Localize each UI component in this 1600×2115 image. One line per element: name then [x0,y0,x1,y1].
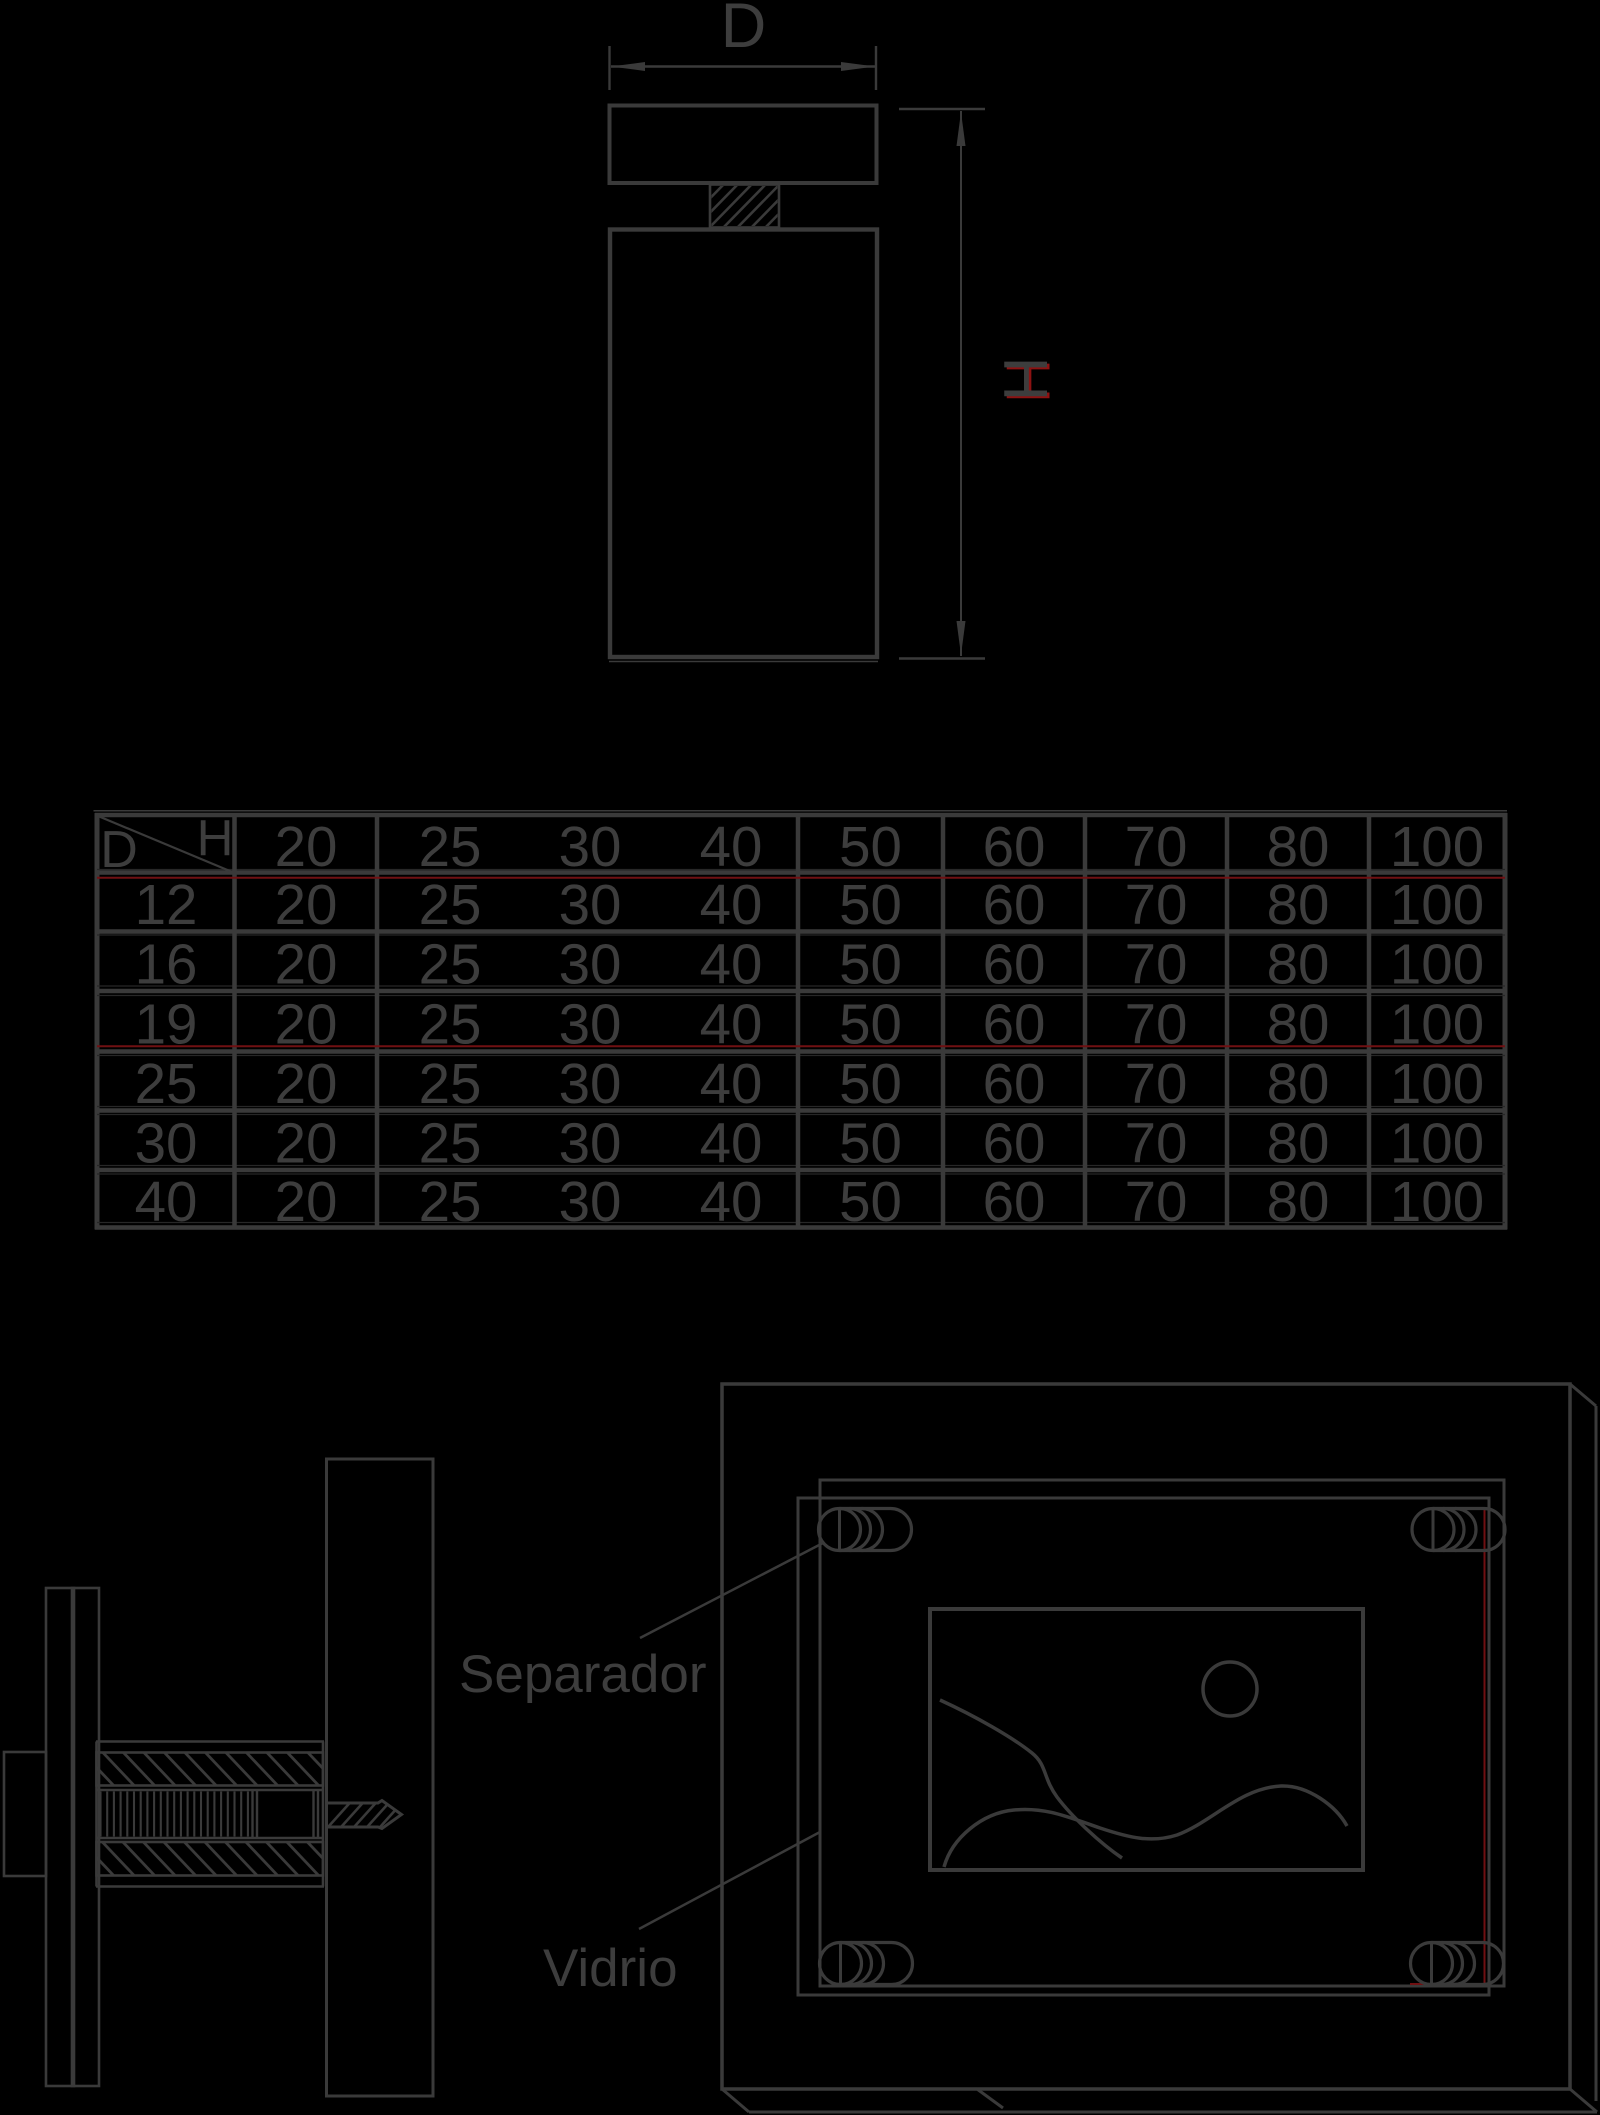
svg-text:100: 100 [1390,815,1484,878]
svg-text:16: 16 [135,932,198,995]
svg-text:50: 50 [839,992,902,1055]
svg-text:40: 40 [700,1052,763,1115]
svg-text:25: 25 [135,1052,198,1115]
svg-text:50: 50 [839,873,902,936]
svg-text:60: 60 [983,873,1046,936]
svg-text:H: H [197,810,234,867]
svg-text:Vidrio: Vidrio [543,1939,678,1998]
svg-text:100: 100 [1390,932,1484,995]
svg-text:80: 80 [1267,1111,1330,1174]
svg-text:40: 40 [700,873,763,936]
svg-text:40: 40 [700,1111,763,1174]
svg-text:50: 50 [839,1170,902,1233]
svg-text:D: D [721,0,767,61]
svg-text:30: 30 [559,1170,622,1233]
svg-text:20: 20 [275,1052,338,1115]
svg-text:D: D [100,821,138,879]
svg-text:20: 20 [275,932,338,995]
svg-text:25: 25 [419,1052,482,1115]
svg-text:100: 100 [1390,873,1484,936]
svg-text:40: 40 [700,1170,763,1233]
svg-text:70: 70 [1125,932,1188,995]
svg-text:70: 70 [1125,1052,1188,1115]
svg-text:30: 30 [559,1052,622,1115]
svg-text:80: 80 [1267,815,1330,878]
svg-text:25: 25 [419,992,482,1055]
svg-text:25: 25 [419,1170,482,1233]
svg-text:60: 60 [983,932,1046,995]
svg-text:100: 100 [1390,1170,1484,1233]
svg-text:25: 25 [419,815,482,878]
svg-text:100: 100 [1390,992,1484,1055]
svg-text:30: 30 [559,1111,622,1174]
svg-text:80: 80 [1267,873,1330,936]
svg-text:20: 20 [275,1111,338,1174]
svg-text:20: 20 [275,992,338,1055]
svg-text:80: 80 [1267,992,1330,1055]
svg-text:100: 100 [1390,1111,1484,1174]
svg-text:25: 25 [419,873,482,936]
svg-text:30: 30 [559,992,622,1055]
svg-text:40: 40 [135,1170,198,1233]
svg-text:20: 20 [275,815,338,878]
svg-text:80: 80 [1267,1052,1330,1115]
svg-text:100: 100 [1390,1052,1484,1115]
svg-text:30: 30 [559,932,622,995]
svg-text:Separador: Separador [459,1645,707,1704]
svg-text:60: 60 [983,992,1046,1055]
svg-text:19: 19 [135,992,198,1055]
svg-text:30: 30 [559,873,622,936]
svg-text:80: 80 [1267,1170,1330,1233]
svg-text:70: 70 [1125,992,1188,1055]
svg-text:40: 40 [700,932,763,995]
svg-text:60: 60 [983,1111,1046,1174]
svg-text:50: 50 [839,1111,902,1174]
svg-text:70: 70 [1125,1111,1188,1174]
svg-text:12: 12 [135,873,198,936]
svg-text:50: 50 [839,932,902,995]
svg-text:30: 30 [135,1111,198,1174]
svg-text:H: H [990,357,1059,402]
svg-text:30: 30 [559,815,622,878]
svg-text:80: 80 [1267,932,1330,995]
svg-text:60: 60 [983,1052,1046,1115]
svg-text:20: 20 [275,873,338,936]
svg-text:50: 50 [839,1052,902,1115]
svg-text:25: 25 [419,932,482,995]
svg-text:70: 70 [1125,815,1188,878]
svg-text:25: 25 [419,1111,482,1174]
svg-text:60: 60 [983,1170,1046,1233]
svg-text:50: 50 [839,815,902,878]
svg-text:20: 20 [275,1170,338,1233]
svg-text:40: 40 [700,815,763,878]
svg-text:40: 40 [700,992,763,1055]
svg-text:70: 70 [1125,873,1188,936]
svg-text:70: 70 [1125,1170,1188,1233]
svg-text:60: 60 [983,815,1046,878]
